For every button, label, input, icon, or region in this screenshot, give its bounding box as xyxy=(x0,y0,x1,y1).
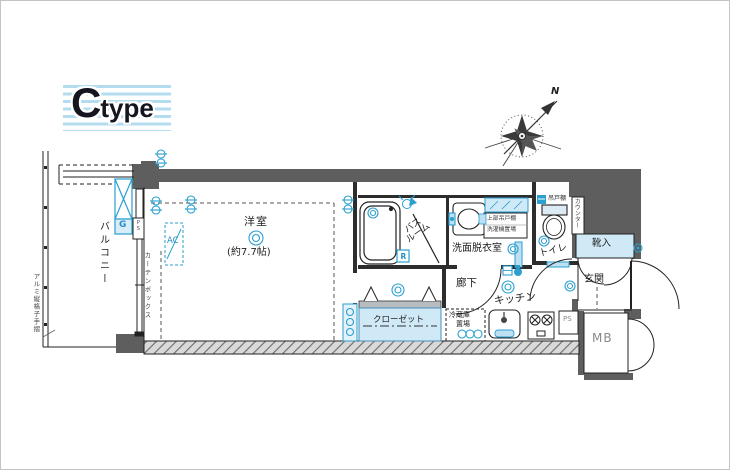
compass-north-label: N xyxy=(551,87,559,98)
sink-icon xyxy=(489,310,520,338)
plan-type-letter: C xyxy=(71,79,100,126)
label-hanging-cupboard: 吊戸棚 xyxy=(548,196,566,202)
label-reheating: R xyxy=(401,253,407,261)
label-air-con: AC xyxy=(167,237,179,246)
pipe-strip xyxy=(343,304,357,341)
entrance-door xyxy=(631,261,679,309)
bathtub-icon xyxy=(360,202,400,264)
floor-plan-canvas: Ctype N 洋室 (約7.7帖) バルコニー アルミ縦格子手摺 カーテンボッ… xyxy=(0,0,730,470)
label-washer-upper: 上部吊戸棚 xyxy=(487,216,516,222)
label-main-room: 洋室 xyxy=(244,216,268,228)
label-main-room-size: (約7.7帖) xyxy=(227,248,271,259)
label-washroom: 洗面脱衣室 xyxy=(452,244,502,255)
label-curtain-box: カーテンボックス xyxy=(143,252,150,320)
label-shoe-box: 靴入 xyxy=(592,239,611,249)
label-handrail: アルミ縦格子手摺 xyxy=(32,273,39,333)
railing-ticks xyxy=(44,166,47,326)
plan-type-title: Ctype xyxy=(71,79,154,127)
label-washer-space: 洗濯機置場 xyxy=(487,227,516,233)
label-meter-box: MB xyxy=(592,332,613,345)
meter-box-doors xyxy=(628,319,654,371)
label-fridge-line2: 置場 xyxy=(456,321,470,328)
floor-plan-svg xyxy=(1,1,730,470)
control-panel-icon xyxy=(503,265,522,276)
compass-rose xyxy=(485,101,561,166)
plan-type-logo: Ctype xyxy=(63,85,171,131)
label-entrance: 玄関 xyxy=(584,275,604,286)
plan-type-word: type xyxy=(100,93,153,123)
label-counter: カウンター xyxy=(573,198,579,228)
label-ps-balcony: PS xyxy=(135,220,141,232)
toilet-icon xyxy=(542,205,567,239)
stove-icon xyxy=(528,312,554,339)
label-ps-kitchen: PS xyxy=(563,316,572,323)
washroom-door-arc xyxy=(456,269,501,314)
label-corridor: 廊下 xyxy=(456,278,477,289)
label-fridge-line1: 冷蔵庫 xyxy=(449,312,470,319)
label-balcony: バルコニー xyxy=(97,221,108,286)
label-gas-meter: G xyxy=(119,221,126,230)
hatched-wall xyxy=(144,341,579,354)
label-closet: クローゼット xyxy=(373,316,424,325)
